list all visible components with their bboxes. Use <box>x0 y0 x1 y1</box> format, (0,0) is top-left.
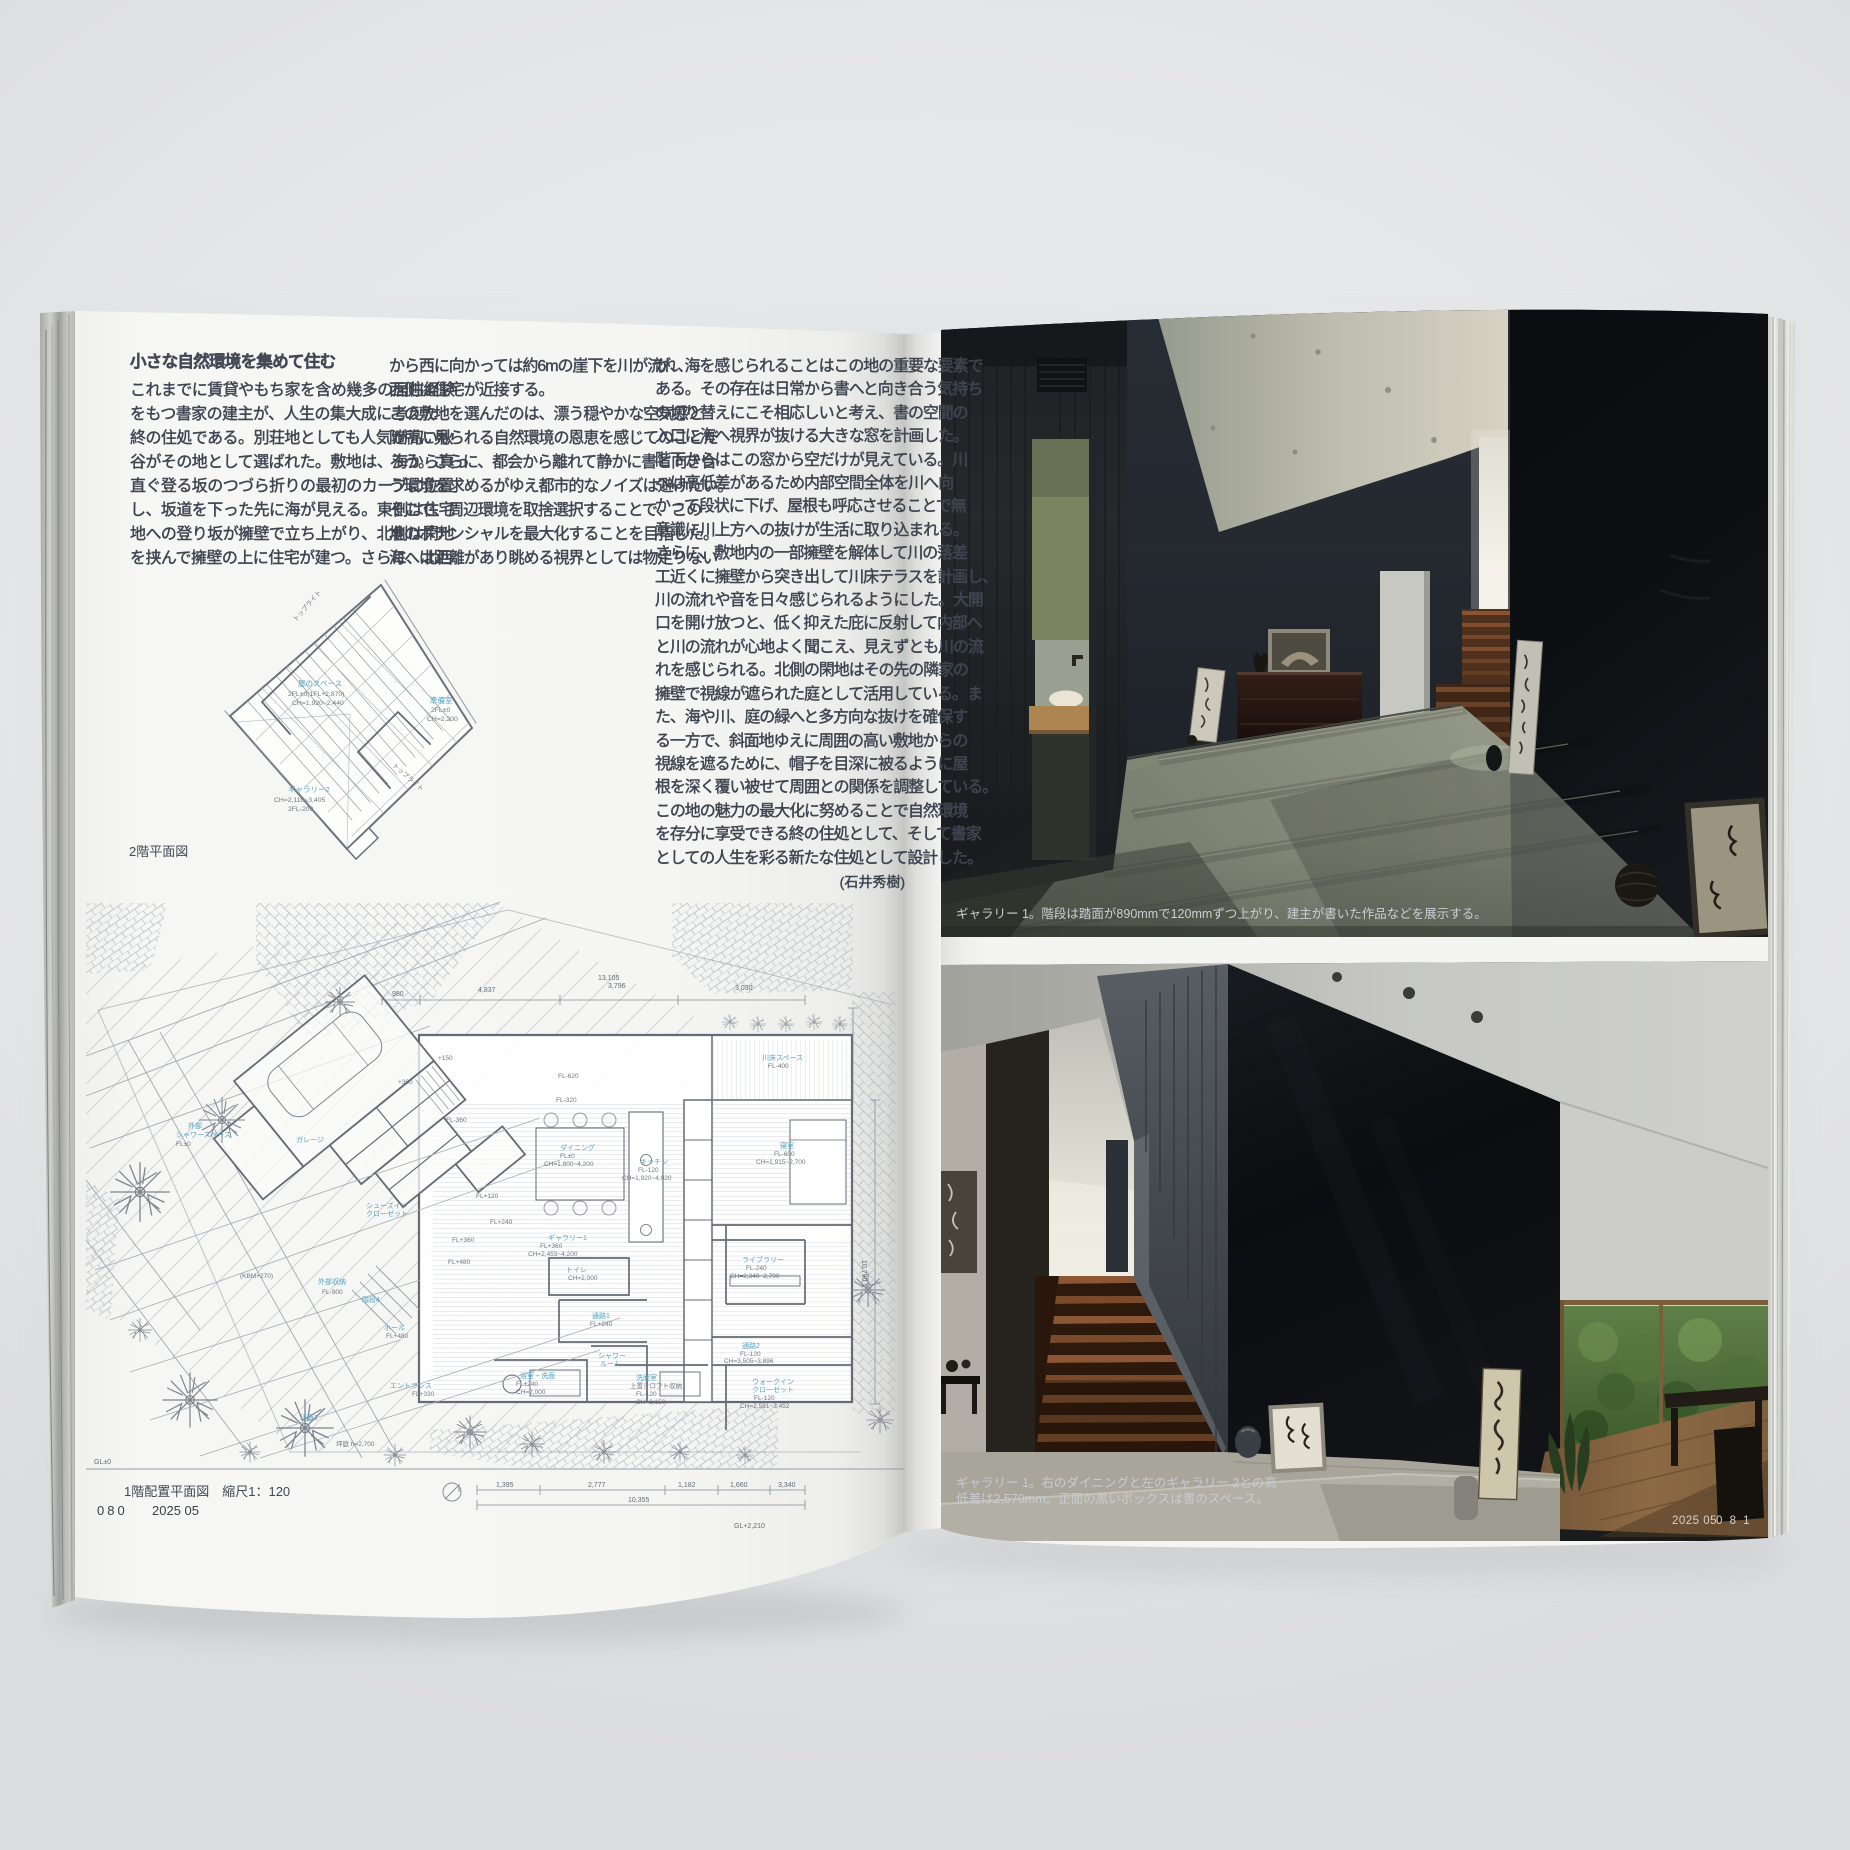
svg-text:洗面室: 洗面室 <box>636 1373 657 1382</box>
svg-text:FL+240: FL+240 <box>590 1321 613 1328</box>
svg-text:CH=1,800~4,200: CH=1,800~4,200 <box>544 1161 594 1168</box>
svg-text:FL+120: FL+120 <box>476 1193 499 1200</box>
svg-text:FL-120: FL-120 <box>740 1351 761 1358</box>
svg-text:準備室: 準備室 <box>430 695 453 705</box>
svg-text:クローゼット: クローゼット <box>366 1209 408 1218</box>
svg-text:2,777: 2,777 <box>588 1482 606 1489</box>
svg-text:外部収納: 外部収納 <box>318 1277 346 1286</box>
svg-text:2FL±0(1FL+2,870): 2FL±0(1FL+2,870) <box>288 691 344 698</box>
svg-text:FL+330: FL+330 <box>412 1391 435 1398</box>
svg-text:FL+240: FL+240 <box>490 1219 513 1226</box>
svg-text:FL-620: FL-620 <box>558 1073 579 1080</box>
svg-text:CH=1,915~2,700: CH=1,915~2,700 <box>756 1159 806 1166</box>
svg-text:トイレ: トイレ <box>566 1267 587 1274</box>
svg-text:ギャラリー 1。階段は踏面が890mmで120mmずつ上がり: ギャラリー 1。階段は踏面が890mmで120mmずつ上がり、建主が書いた作品な… <box>956 906 1487 921</box>
svg-text:2階平面図: 2階平面図 <box>129 844 188 859</box>
svg-text:1階配置平面図 縮尺1：120: 1階配置平面図 縮尺1：120 <box>124 1484 290 1499</box>
svg-text:FL-120: FL-120 <box>636 1391 657 1398</box>
svg-text:CH=2,200: CH=2,200 <box>427 716 458 723</box>
svg-text:CH=2,453~4,200: CH=2,453~4,200 <box>528 1251 578 1258</box>
svg-text:坪庭 h=2,700: 坪庭 h=2,700 <box>336 1439 375 1448</box>
svg-text:2025 05: 2025 05 <box>1672 1515 1717 1527</box>
svg-text:FL-400: FL-400 <box>768 1063 789 1070</box>
svg-text:FL+360: FL+360 <box>540 1243 563 1250</box>
svg-text:CH=2,000: CH=2,000 <box>568 1275 598 1282</box>
svg-text:0 8 1: 0 8 1 <box>1716 1515 1752 1527</box>
svg-text:シャワー: シャワー <box>598 1352 626 1360</box>
svg-text:FL-120: FL-120 <box>638 1167 659 1174</box>
svg-text:ギャラリー2: ギャラリー2 <box>288 785 330 794</box>
svg-text:FL+480: FL+480 <box>386 1333 409 1340</box>
svg-text:エントランス: エントランス <box>390 1382 432 1390</box>
svg-text:FL-360: FL-360 <box>446 1117 467 1124</box>
svg-text:CH=1,920~4,020: CH=1,920~4,020 <box>622 1175 672 1182</box>
svg-text:FL±0: FL±0 <box>176 1141 191 1148</box>
svg-text:川床スペース: 川床スペース <box>762 1053 803 1062</box>
svg-text:(KBM+270): (KBM+270) <box>240 1273 273 1280</box>
svg-text:980: 980 <box>392 991 404 998</box>
svg-text:FL±240: FL±240 <box>516 1381 538 1388</box>
svg-text:低差は2,570mm。正面の黒いボックスは書のスペース。: 低差は2,570mm。正面の黒いボックスは書のスペース。 <box>956 1492 1269 1506</box>
svg-text:GL+2,210: GL+2,210 <box>734 1523 765 1530</box>
svg-text:CH=2,110~3,405: CH=2,110~3,405 <box>274 797 325 804</box>
svg-text:キッチン: キッチン <box>640 1158 668 1166</box>
svg-text:GL±0: GL±0 <box>94 1459 111 1466</box>
svg-text:FL+360: FL+360 <box>452 1237 475 1244</box>
svg-text:3,340: 3,340 <box>778 1482 796 1489</box>
svg-text:坪庭1: 坪庭1 <box>300 1413 318 1422</box>
svg-text:クローゼット: クローゼット <box>752 1385 794 1394</box>
svg-text:ガレージ: ガレージ <box>296 1135 324 1144</box>
svg-text:FL+480: FL+480 <box>448 1259 471 1266</box>
svg-text:+360: +360 <box>398 1079 413 1086</box>
svg-text:シャワースペース: シャワースペース <box>176 1131 231 1139</box>
svg-text:外部: 外部 <box>188 1121 202 1130</box>
svg-text:CH=3,505~3,896: CH=3,505~3,896 <box>724 1358 774 1365</box>
svg-text:FL-320: FL-320 <box>556 1097 577 1104</box>
svg-text:ルーム: ルーム <box>600 1360 621 1368</box>
svg-text:シューズイン: シューズイン <box>366 1201 408 1210</box>
svg-text:FL-120: FL-120 <box>754 1395 775 1402</box>
svg-text:CH=2,000: CH=2,000 <box>516 1389 546 1396</box>
svg-text:寝室: 寝室 <box>780 1141 794 1150</box>
svg-text:FL-900: FL-900 <box>322 1289 343 1296</box>
svg-text:ギャラリー1: ギャラリー1 <box>548 1234 587 1242</box>
svg-text:3,796: 3,796 <box>608 983 626 990</box>
svg-text:CH=2,591~3,452: CH=2,591~3,452 <box>740 1403 790 1410</box>
svg-text:階段4: 階段4 <box>362 1295 380 1304</box>
svg-text:上置きロフト収納: 上置きロフト収納 <box>630 1381 682 1390</box>
svg-text:FL±0: FL±0 <box>560 1153 575 1160</box>
svg-text:ウォークイン: ウォークイン <box>752 1378 794 1386</box>
svg-text:CH=1,920~2,440: CH=1,920~2,440 <box>292 700 344 707</box>
svg-text:3,030: 3,030 <box>735 985 753 992</box>
svg-text:ダイニング: ダイニング <box>560 1143 595 1152</box>
svg-text:1,660: 1,660 <box>730 1482 748 1489</box>
svg-text:10,790.5: 10,790.5 <box>860 1260 867 1287</box>
svg-text:ライブラリー: ライブラリー <box>742 1255 784 1264</box>
svg-text:ギャラリー 1。右のダイニングと左のギャラリー 2との高: ギャラリー 1。右のダイニングと左のギャラリー 2との高 <box>956 1475 1277 1490</box>
svg-text:通路1: 通路1 <box>592 1311 610 1320</box>
svg-text:2FL±0: 2FL±0 <box>431 707 450 714</box>
svg-text:10,355: 10,355 <box>628 1497 650 1504</box>
svg-text:FL-240: FL-240 <box>746 1265 767 1272</box>
svg-text:4,837: 4,837 <box>478 987 496 994</box>
svg-text:+150: +150 <box>438 1055 453 1062</box>
svg-text:1,395: 1,395 <box>496 1482 514 1489</box>
svg-text:浴室・洗面: 浴室・洗面 <box>520 1371 555 1380</box>
svg-text:ホール: ホール <box>384 1324 405 1332</box>
svg-text:屋のスペース: 屋のスペース <box>298 679 342 688</box>
svg-text:通路2: 通路2 <box>742 1341 760 1350</box>
svg-text:13,105: 13,105 <box>598 975 620 982</box>
svg-text:1,182: 1,182 <box>678 1482 696 1489</box>
svg-text:2FL-209: 2FL-209 <box>288 806 314 813</box>
svg-text:CH=2,340~2,790: CH=2,340~2,790 <box>730 1273 780 1280</box>
svg-text:CH=2,150: CH=2,150 <box>636 1399 666 1406</box>
svg-text:FL-600: FL-600 <box>774 1151 795 1158</box>
